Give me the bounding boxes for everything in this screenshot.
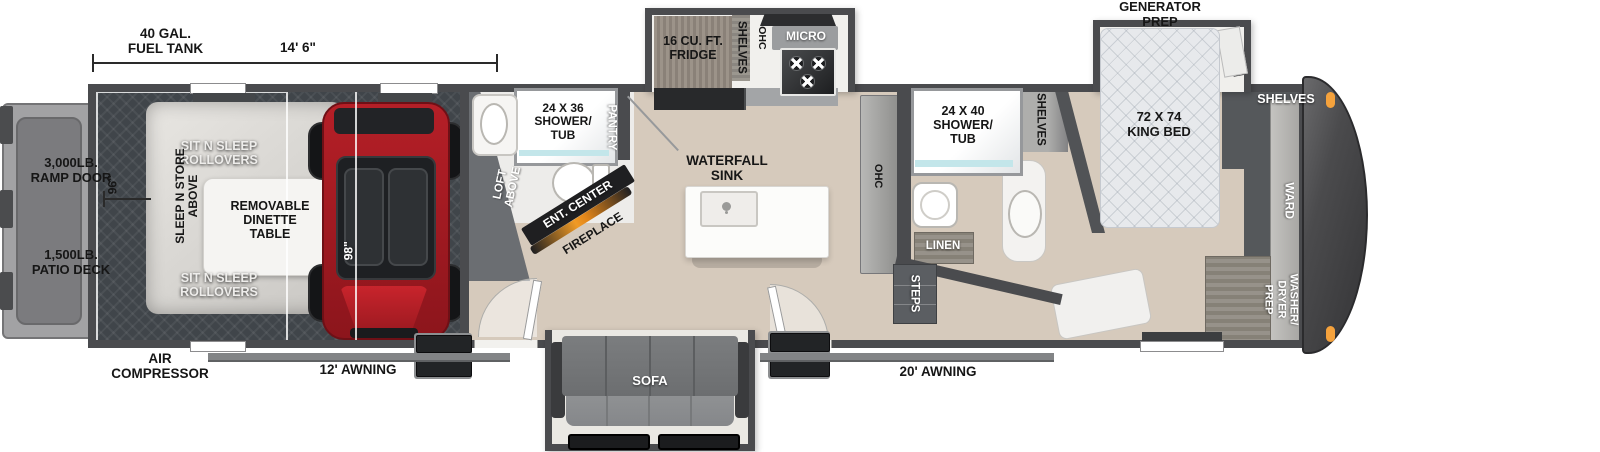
kitchen-ohc-label: OHC — [755, 21, 767, 55]
dim-tick — [496, 54, 498, 72]
awning-left-label: 12' AWNING — [296, 362, 420, 377]
waterfall-sink-label: WATERFALL SINK — [667, 153, 787, 183]
pantry-label: PANTRY — [605, 97, 618, 157]
dim-96-label: 96" — [106, 165, 119, 205]
deck-rail — [0, 106, 13, 144]
atv-bumper — [350, 328, 418, 338]
mid-bath-sink — [480, 103, 508, 145]
garage-wall — [460, 91, 469, 341]
top-wall — [1247, 84, 1307, 92]
mid-bath-shower-label: 24 X 36 SHOWER/ TUB — [517, 102, 609, 142]
burner — [811, 56, 826, 71]
bottom-wall — [755, 340, 1307, 348]
front-bath-sink — [1008, 190, 1042, 238]
fuel-tank-label: 40 GAL. FUEL TANK — [103, 26, 228, 56]
step-tread — [416, 335, 472, 353]
generator-prep-label: GENERATOR PREP — [1100, 0, 1220, 29]
patio-deck-label: 1,500LB. PATIO DECK — [8, 248, 134, 277]
sofa-mat — [658, 434, 740, 450]
garage-zone-line — [355, 91, 357, 341]
kitchen-lower-cabinets — [654, 88, 746, 110]
front-bath-toilet-bowl — [920, 190, 950, 220]
atv-seat — [388, 168, 428, 266]
dim-tick — [92, 54, 94, 72]
rear-wall — [88, 84, 96, 348]
deck-rail — [0, 272, 13, 310]
bedroom-window-shade — [1142, 332, 1222, 341]
length-label: 14' 6" — [253, 40, 343, 55]
sofa-mat — [568, 434, 650, 450]
awning-right-label: 20' AWNING — [874, 364, 1002, 379]
clearance-light — [1326, 92, 1335, 108]
patio-deck-inner — [16, 117, 82, 325]
linen-label: LINEN — [914, 240, 972, 253]
awning-bar-right — [760, 353, 1054, 362]
hall-ohc-label: OHC — [872, 158, 884, 194]
dinette-label: REMOVABLE DINETTE TABLE — [206, 199, 334, 241]
sit-n-sleep-top-label: SIT N SLEEP ROLLOVERS — [150, 139, 288, 167]
air-compressor-label: AIR COMPRESSOR — [92, 351, 228, 381]
mid-bath-shower-glass — [519, 150, 609, 156]
range-hood — [760, 14, 836, 26]
front-bath-shelves-label: SHELVES — [1034, 90, 1047, 148]
steps-label: STEPS — [908, 271, 921, 315]
dim-98-label: 98" — [342, 231, 355, 271]
washer-dryer-closet — [1205, 256, 1271, 344]
roof-vent — [378, 93, 432, 102]
atv-rear-rack — [334, 108, 434, 134]
burner — [789, 56, 804, 71]
entry-door-gap — [474, 340, 538, 348]
front-bath-wall — [897, 88, 911, 272]
fridge-label: 16 CU. FT. FRIDGE — [654, 34, 732, 62]
fuel-tank-dim-line — [92, 62, 498, 64]
window — [1140, 341, 1224, 352]
front-bath-shower-label: 24 X 40 SHOWER/ TUB — [917, 104, 1009, 146]
front-bath-shower-glass — [915, 160, 1013, 167]
island-faucet — [722, 202, 731, 211]
front-shelves-label: SHELVES — [1246, 92, 1326, 106]
kitchen-shelves-label: SHELVES — [735, 19, 748, 75]
clearance-light — [1326, 326, 1335, 342]
sleep-n-store-label: SLEEP N STORE ABOVE — [174, 141, 202, 251]
rv-floorplan: 3,000LB. RAMP DOOR 1,500LB. PATIO DECK S… — [0, 0, 1600, 452]
sofa-seat — [566, 396, 734, 426]
sit-n-sleep-bottom-label: SIT N SLEEP ROLLOVERS — [150, 271, 288, 299]
deck-rail — [0, 190, 13, 228]
king-bed-label: 72 X 74 KING BED — [1098, 110, 1220, 139]
sofa-label: SOFA — [590, 374, 710, 389]
step-tread — [770, 333, 830, 352]
awning-bar-left — [208, 353, 510, 362]
washer-dryer-label: WASHER/ DRYER PREP — [1263, 264, 1300, 334]
micro-label: MICRO — [776, 30, 836, 43]
ward-label: WARD — [1282, 181, 1295, 221]
front-cap — [1302, 76, 1368, 354]
roof-vent — [193, 93, 255, 102]
burner — [800, 74, 815, 89]
